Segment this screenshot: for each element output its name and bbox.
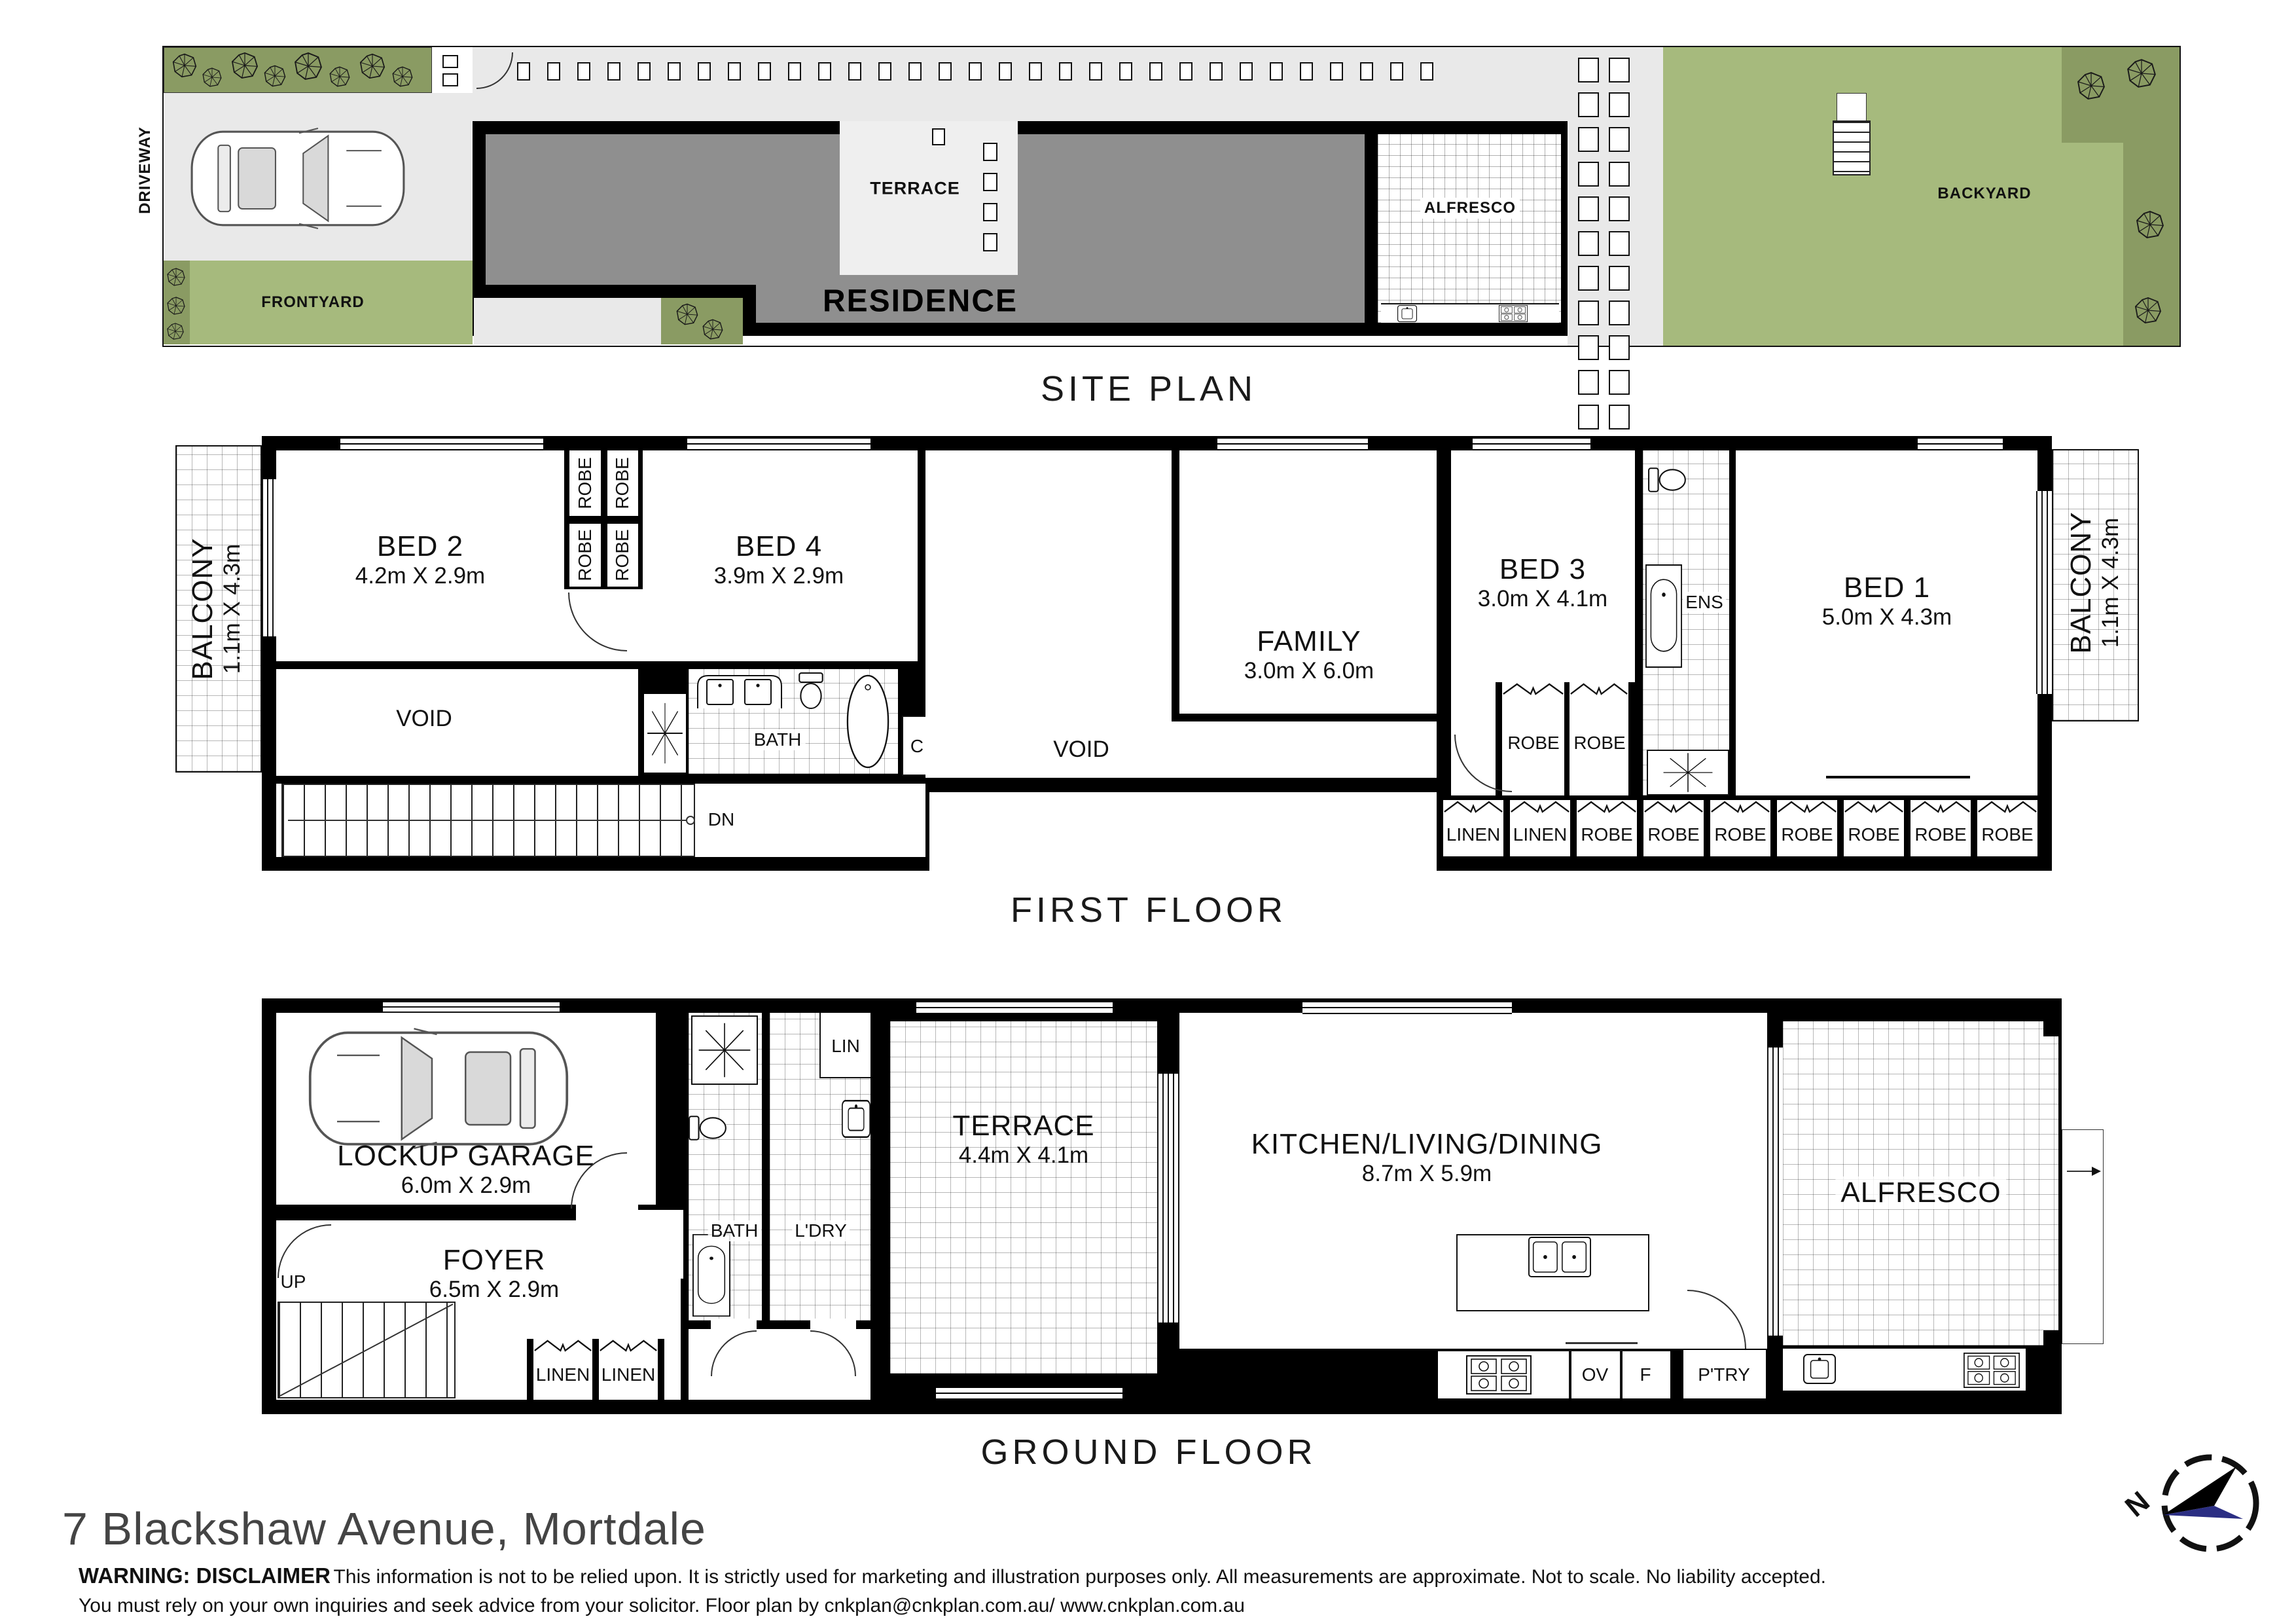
garage-label: LOCKUP GARAGE 6.0m X 2.9m (337, 1140, 595, 1199)
void-mid-label: VOID (1053, 737, 1109, 763)
counter-line (1566, 1342, 1638, 1344)
window (916, 1001, 1113, 1014)
balcony-left-label: BALCONY 1.1m X 4.3m (187, 538, 245, 680)
paver (1029, 62, 1042, 81)
paver (1609, 370, 1630, 395)
floorplan-sheet: DRIVEWAY FRONTYARD TERRACE RESIDENCE ALF… (0, 0, 2296, 1623)
tree-icon (230, 51, 259, 80)
side-walkway (2062, 1129, 2104, 1344)
bifold-door (1910, 800, 1971, 813)
bathtub-icon (846, 673, 890, 770)
robe-wall (1628, 682, 1635, 795)
ens-label: ENS (1683, 592, 1726, 613)
sink-icon (842, 1100, 870, 1138)
bed4-label: BED 4 3.9m X 2.9m (714, 530, 844, 589)
backyard-walkway (1837, 93, 1867, 122)
paver (758, 62, 771, 81)
bifold-door (1844, 800, 1904, 813)
paver (577, 62, 590, 81)
paver (1210, 62, 1223, 81)
storage-label: ROBE (1647, 824, 1699, 845)
dn-label: DN (708, 809, 734, 830)
window (687, 437, 870, 450)
bifold-door (1577, 800, 1637, 813)
f-label: F (1640, 1364, 1651, 1385)
linen-wall (658, 1339, 664, 1400)
family-label: FAMILY 3.0m X 6.0m (1244, 625, 1374, 684)
tree-icon (293, 51, 323, 81)
tree-icon (166, 296, 186, 316)
lin-label: LIN (831, 1036, 860, 1057)
site-terrace-label: TERRACE (870, 179, 960, 199)
tree-icon (166, 267, 186, 287)
window (1302, 1001, 1512, 1014)
skylight-icon (698, 1022, 751, 1078)
bifold-door (599, 1339, 658, 1352)
paver (818, 62, 831, 81)
void-left-label: VOID (396, 706, 452, 732)
alfresco-slider (1767, 1048, 1783, 1336)
ptry-label: P'TRY (1698, 1364, 1750, 1385)
robe-label: ROBE (612, 457, 633, 509)
bifold-door (533, 1339, 592, 1352)
backyard-label: BACKYARD (1937, 185, 2031, 203)
paver (1609, 162, 1630, 187)
storage-label: LINEN (1513, 824, 1567, 845)
bifold-door (1570, 682, 1628, 695)
tree-icon (702, 318, 724, 340)
paver (848, 62, 861, 81)
paver (1609, 231, 1630, 256)
bath-gf-label: BATH (708, 1220, 761, 1241)
paver (1578, 405, 1599, 429)
paver (1578, 335, 1599, 360)
paver (1578, 301, 1599, 325)
tree-icon (166, 322, 185, 340)
bifold-door (1510, 800, 1570, 813)
tree-icon (675, 302, 699, 326)
residence-label: RESIDENCE (823, 283, 1018, 319)
robe-label: ROBE (575, 457, 596, 509)
paver (1330, 62, 1343, 81)
bifold-door (1777, 800, 1837, 813)
double-sink-icon (1528, 1237, 1591, 1277)
linen-wall (592, 1339, 599, 1400)
stair-knob (686, 816, 695, 825)
ov-label: OV (1582, 1364, 1608, 1385)
first-floor-title: FIRST FLOOR (1011, 890, 1287, 930)
disclaimer-line2: You must rely on your own inquiries and … (79, 1595, 2108, 1617)
tree-icon (2135, 210, 2165, 240)
paver (788, 62, 801, 81)
linen-label: LINEN (601, 1364, 655, 1385)
terrace-paver (983, 203, 997, 221)
skylight-icon (647, 702, 683, 765)
tree-icon (2134, 296, 2162, 325)
paver (698, 62, 711, 81)
storage-label: ROBE (1914, 824, 1966, 845)
paver (547, 62, 560, 81)
storage-label: ROBE (1581, 824, 1632, 845)
bifold-door (1502, 682, 1564, 695)
terrace-paver (932, 128, 945, 145)
window (1217, 437, 1368, 450)
ground-floor-title: GROUND FLOOR (980, 1432, 1316, 1472)
site-alfresco (1378, 134, 1561, 323)
terrace-paver (983, 173, 997, 191)
driveway-label: DRIVEWAY (136, 126, 154, 214)
window (1918, 437, 2003, 450)
paver (1089, 62, 1102, 81)
robe-wall (1564, 682, 1570, 795)
paver (999, 62, 1012, 81)
cooktop-icon (1964, 1353, 2020, 1388)
tree-icon (171, 52, 198, 79)
letterbox (442, 55, 458, 68)
tree-icon (329, 65, 351, 88)
ldry-label: L'DRY (792, 1220, 850, 1241)
toilet-icon (1647, 464, 1688, 496)
door-gap (711, 1319, 757, 1330)
tree-icon (263, 64, 287, 88)
letterbox (442, 73, 458, 86)
toilet-icon (795, 672, 827, 711)
paver (1609, 335, 1630, 360)
storage-label: ROBE (1714, 824, 1766, 845)
site-plan-title: SITE PLAN (1041, 369, 1257, 409)
frontyard-label: FRONTYARD (261, 293, 364, 312)
car-icon (308, 1028, 569, 1149)
vanity-icon (1645, 564, 1682, 668)
paver (1179, 62, 1193, 81)
paver (1578, 196, 1599, 221)
paver (1300, 62, 1313, 81)
paver (517, 62, 530, 81)
tree-icon (2076, 71, 2106, 101)
cooktop-icon (1466, 1355, 1532, 1395)
bifold-door (1643, 800, 1704, 813)
sink-icon (1397, 305, 1417, 322)
paver (668, 62, 681, 81)
foyer-label: FOYER 6.5m X 2.9m (429, 1244, 559, 1303)
toilet-icon (688, 1112, 728, 1144)
paver-court (1568, 47, 1663, 346)
paver-row (517, 62, 1551, 81)
alfresco-post (2043, 1021, 2058, 1036)
paver (1578, 231, 1599, 256)
compass-icon (2150, 1448, 2268, 1566)
paver (1240, 62, 1253, 81)
disclaimer-line1: WARNING: DISCLAIMER This information is … (79, 1563, 2108, 1588)
paver (969, 62, 982, 81)
void-corridor (1172, 721, 1437, 778)
closet-c-label: C (910, 736, 924, 757)
storage-label: ROBE (1981, 824, 2033, 845)
bed3-label: BED 3 3.0m X 4.1m (1478, 553, 1607, 612)
paver (1149, 62, 1162, 81)
window (340, 437, 543, 450)
paver (1390, 62, 1403, 81)
paver (637, 62, 651, 81)
basin-icon (695, 672, 784, 710)
walkway-arrow (2067, 1171, 2093, 1172)
bed1-robe-line (1826, 776, 1970, 778)
paver (1360, 62, 1373, 81)
tree-icon (391, 65, 414, 88)
bifold-door (1977, 800, 2037, 813)
stair-guide (288, 820, 689, 821)
bath-ff-label: BATH (750, 729, 806, 750)
bed2-label: BED 2 4.2m X 2.9m (355, 530, 485, 589)
backyard-stairs (1833, 120, 1871, 175)
site-alfresco-label: ALFRESCO (1420, 198, 1520, 219)
door-gap (810, 1319, 856, 1330)
paver (1609, 196, 1630, 221)
paver (1420, 62, 1433, 81)
balcony-slider (2036, 491, 2053, 694)
terrace-paver (983, 233, 997, 251)
storage-label: LINEN (1446, 824, 1500, 845)
bed3-robe-label: ROBE (1573, 733, 1625, 754)
address: 7 Blackshaw Avenue, Mortdale (62, 1503, 706, 1555)
bed1-label: BED 1 5.0m X 4.3m (1822, 572, 1952, 630)
paver (1609, 92, 1630, 117)
bifold-door (1710, 800, 1770, 813)
paver (1059, 62, 1072, 81)
car-icon (190, 128, 406, 229)
bench-divider (1569, 1350, 1571, 1398)
robe-label: ROBE (612, 529, 633, 581)
tree-icon (202, 67, 223, 88)
room-terrace (890, 1021, 1157, 1374)
bench-divider (1620, 1350, 1623, 1398)
paver (607, 62, 620, 81)
side-walk (474, 298, 661, 344)
paver (939, 62, 952, 81)
kitchen-label: KITCHEN/LIVING/DINING 8.7m X 5.9m (1251, 1128, 1603, 1187)
alfresco-label: ALFRESCO (1835, 1176, 2006, 1209)
paver (1270, 62, 1283, 81)
paver (1578, 266, 1599, 291)
paver (1119, 62, 1132, 81)
tree-icon (359, 52, 386, 80)
storage-label: ROBE (1781, 824, 1833, 845)
vanity-icon (692, 1234, 730, 1317)
ground-floor-walls (1767, 1391, 2062, 1414)
linen-label: LINEN (536, 1364, 590, 1385)
tree-icon (2126, 58, 2157, 89)
bed3-robe-label: ROBE (1507, 733, 1559, 754)
terrace-paver (983, 143, 997, 161)
paver (1609, 405, 1630, 429)
paver (728, 62, 741, 81)
paver (878, 62, 891, 81)
void-left (276, 669, 638, 776)
sink-icon (1803, 1354, 1836, 1384)
paver (1578, 127, 1599, 152)
paver (1578, 162, 1599, 187)
terrace-label: TERRACE 4.4m X 4.1m (952, 1110, 1094, 1169)
paver (1609, 301, 1630, 325)
terrace-slider (1157, 1074, 1179, 1322)
bifold-door (1443, 800, 1503, 813)
window (936, 1387, 1122, 1400)
robe-label: ROBE (575, 529, 596, 581)
cooktop-icon (1499, 305, 1528, 322)
balcony-slider (262, 479, 278, 636)
front-path (473, 47, 1568, 123)
skylight-icon (1662, 752, 1713, 793)
window (1473, 437, 1590, 450)
disclaimer-text: This information is not to be relied upo… (333, 1566, 1826, 1588)
garage-door (383, 1001, 560, 1014)
paver (908, 62, 922, 81)
paver (1578, 370, 1599, 395)
paver (1609, 58, 1630, 82)
balcony-right-label: BALCONY 1.1m X 4.3m (2065, 511, 2124, 653)
disclaimer-bold: WARNING: DISCLAIMER (79, 1563, 331, 1588)
stair-diagonal (278, 1302, 456, 1398)
paver (1578, 58, 1599, 82)
paver (1609, 266, 1630, 291)
paver (1578, 92, 1599, 117)
linen-wall (527, 1339, 533, 1400)
storage-label: ROBE (1848, 824, 1899, 845)
paver (1609, 127, 1630, 152)
alfresco-post (2043, 1330, 2058, 1345)
landing (925, 450, 1172, 778)
